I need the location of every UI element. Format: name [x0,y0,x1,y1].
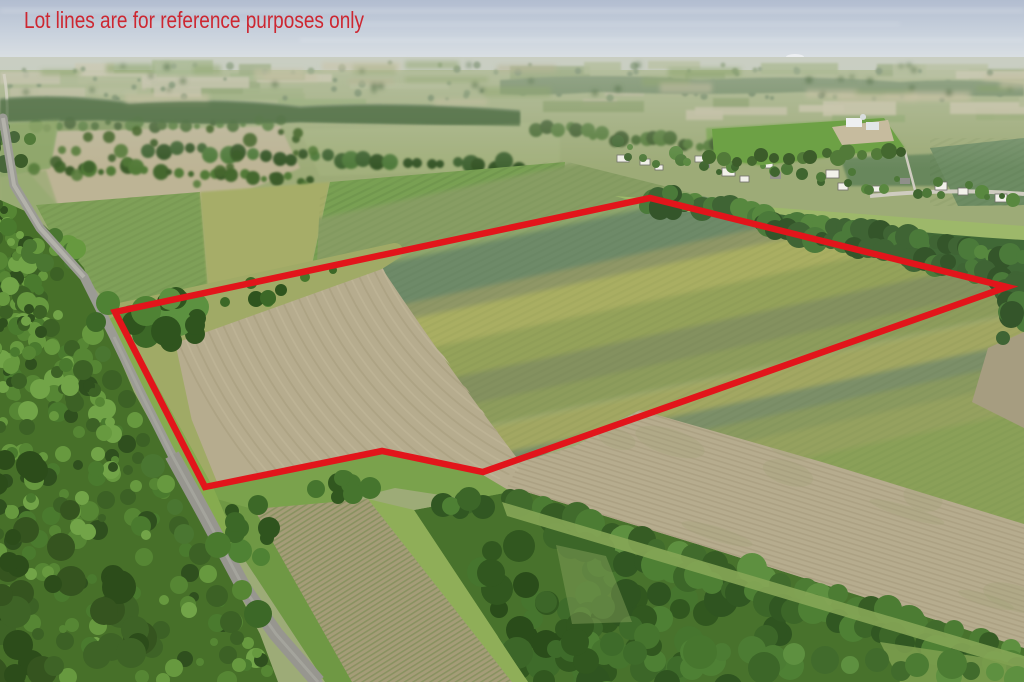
svg-text:Lot lines are for reference pu: Lot lines are for reference purposes onl… [24,7,364,33]
